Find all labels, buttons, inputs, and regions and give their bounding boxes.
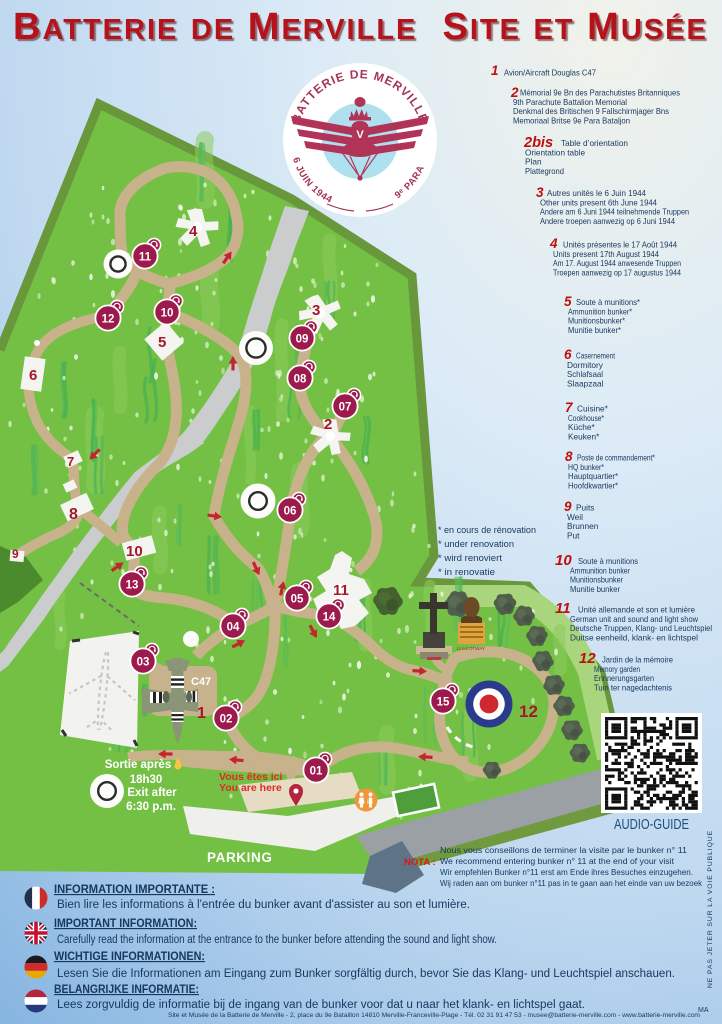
svg-text:12: 12 (102, 313, 115, 325)
svg-text:6:30 p.m.: 6:30 p.m. (126, 801, 176, 813)
svg-text:* under renovation: * under renovation (438, 539, 514, 549)
svg-text:INFORMATION IMPORTANTE :: INFORMATION IMPORTANTE : (54, 884, 215, 896)
svg-text:Tuin ter nagedachtenis: Tuin ter nagedachtenis (594, 683, 672, 693)
svg-text:* wird renoviert: * wird renoviert (438, 553, 502, 563)
svg-text:Andere troepen aanwezig op 6 J: Andere troepen aanwezig op 6 Juni 1944 (540, 216, 675, 226)
svg-text:2: 2 (324, 416, 332, 433)
svg-text:AUDIO-GUIDE: AUDIO-GUIDE (614, 817, 689, 833)
svg-text:1: 1 (491, 63, 499, 78)
svg-text:Lesen Sie die Informationen am: Lesen Sie die Informationen am Eingang z… (57, 968, 675, 980)
svg-text:NOTA :: NOTA : (404, 857, 436, 868)
svg-text:04: 04 (227, 621, 240, 633)
svg-text:3: 3 (312, 302, 320, 319)
svg-text:9: 9 (12, 547, 19, 561)
svg-text:You are here: You are here (219, 782, 282, 794)
svg-text:10: 10 (161, 307, 174, 319)
svg-text:7: 7 (67, 454, 74, 469)
svg-text:NE PAS JETER SUR LA VOIE PUBLI: NE PAS JETER SUR LA VOIE PUBLIQUE (707, 830, 714, 988)
svg-text:12: 12 (519, 702, 538, 721)
svg-text:Wir empfehlen Bunker n°11 erst: Wir empfehlen Bunker n°11 erst am Ende i… (440, 868, 693, 877)
svg-text:Troepen aanwezig op 17 augustu: Troepen aanwezig op 17 augustus 1944 (553, 268, 681, 278)
svg-text:1: 1 (197, 705, 206, 722)
svg-text:09: 09 (296, 333, 309, 345)
svg-text:Memoriaal Britse 9e Para Batal: Memoriaal Britse 9e Para Bataljon (513, 116, 630, 126)
svg-text:Nous vous conseillons de termi: Nous vous conseillons de terminer la vis… (440, 846, 687, 855)
svg-text:Exit after: Exit after (127, 787, 177, 799)
svg-text:07: 07 (339, 401, 352, 413)
svg-text:5: 5 (158, 334, 166, 351)
svg-text:Lt col OTWAY: Lt col OTWAY (457, 646, 485, 651)
svg-text:Munitie bunker: Munitie bunker (570, 584, 620, 594)
svg-text:Slaapzaal: Slaapzaal (567, 379, 604, 389)
svg-text:4: 4 (189, 223, 198, 240)
svg-text:* in renovatie: * in renovatie (438, 567, 495, 577)
svg-text:18h30: 18h30 (130, 774, 163, 786)
svg-text:Avion/Aircraft Douglas C47: Avion/Aircraft Douglas C47 (504, 68, 596, 78)
svg-text:Sortie après: Sortie après (105, 759, 171, 771)
svg-text:Carefully read the information: Carefully read the information at the en… (57, 934, 497, 946)
svg-text:15: 15 (437, 696, 450, 708)
svg-text:Bien lire les informations à l: Bien lire les informations à l'entrée du… (57, 899, 470, 911)
svg-text:We recommend entering bunker n: We recommend entering bunker n° 11 at th… (440, 857, 675, 866)
svg-text:02: 02 (220, 713, 233, 725)
svg-text:11: 11 (555, 600, 571, 617)
svg-text:Plattegrond: Plattegrond (525, 166, 564, 176)
svg-text:C47: C47 (191, 676, 211, 688)
svg-text:11: 11 (333, 582, 349, 599)
svg-text:08: 08 (294, 373, 307, 385)
svg-text:03: 03 (137, 656, 150, 668)
svg-text:MA: MA (698, 1007, 709, 1014)
svg-text:Munitie bunker*: Munitie bunker* (568, 325, 622, 335)
svg-text:Duitse eenheild, klank- en lic: Duitse eenheild, klank- en lichtspel (570, 633, 698, 643)
svg-text:V: V (356, 129, 364, 141)
svg-text:WICHTIGE INFORMATIONEN:: WICHTIGE INFORMATIONEN: (54, 951, 205, 963)
svg-text:6: 6 (29, 367, 37, 384)
svg-text:05: 05 (291, 593, 304, 605)
svg-text:BELANGRIJKE INFORMATIE:: BELANGRIJKE INFORMATIE: (54, 984, 199, 996)
svg-text:8: 8 (69, 506, 78, 523)
svg-text:IMPORTANT INFORMATION:: IMPORTANT INFORMATION: (54, 918, 197, 930)
svg-text:01: 01 (310, 765, 323, 777)
svg-text:Site et Musée de la Batterie d: Site et Musée de la Batterie de Merville… (168, 1012, 700, 1019)
svg-text:Put: Put (567, 531, 580, 541)
svg-text:13: 13 (126, 579, 139, 591)
svg-text:11: 11 (139, 251, 152, 263)
svg-text:PARKING: PARKING (207, 850, 272, 865)
svg-text:Hoofdkwartier*: Hoofdkwartier* (568, 481, 619, 491)
svg-text:06: 06 (284, 505, 297, 517)
svg-text:14: 14 (323, 611, 336, 623)
svg-text:10: 10 (126, 543, 143, 560)
svg-text:Wij raden aan om bunker n°11 p: Wij raden aan om bunker n°11 pas in te g… (440, 879, 702, 888)
svg-text:Keuken*: Keuken* (568, 432, 600, 442)
svg-text:Lees zorgvuldig de informatie: Lees zorgvuldig de informatie bij de ing… (57, 999, 585, 1011)
svg-text:* en cours de rénovation: * en cours de rénovation (438, 525, 536, 535)
